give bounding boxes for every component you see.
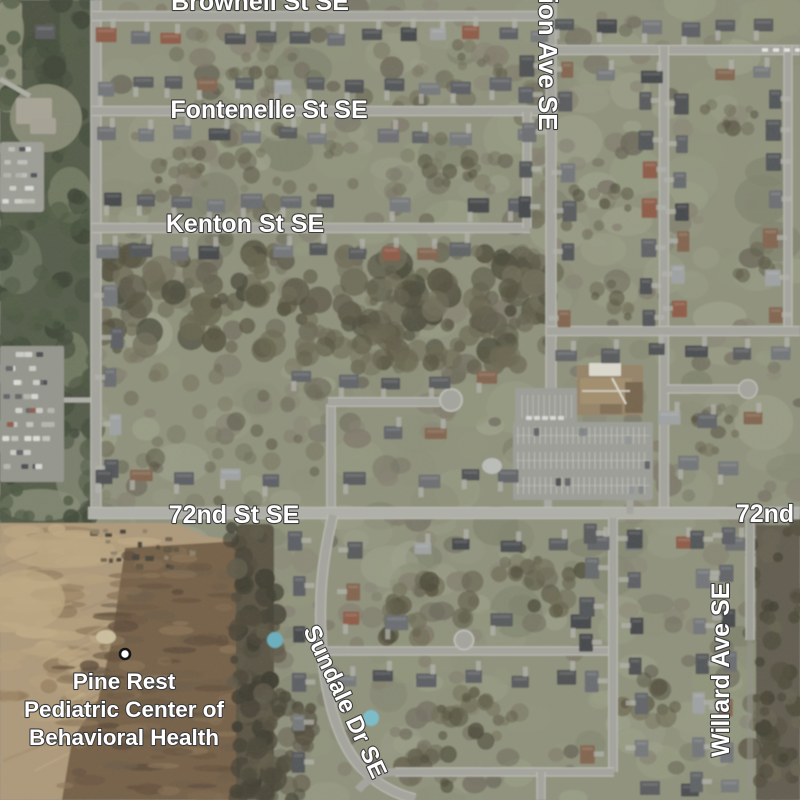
svg-text:Behavioral Health: Behavioral Health <box>29 725 219 750</box>
svg-text:72nd St SE: 72nd St SE <box>169 501 300 529</box>
svg-text:Willard Ave SE: Willard Ave SE <box>707 583 735 757</box>
svg-text:Pine Rest: Pine Rest <box>73 669 176 694</box>
svg-text:Pediatric Center of: Pediatric Center of <box>24 697 225 722</box>
svg-text:Union Ave SE: Union Ave SE <box>533 0 563 131</box>
svg-text:Brownell St SE: Brownell St SE <box>171 0 349 16</box>
svg-text:Fontenelle St SE: Fontenelle St SE <box>170 96 367 124</box>
svg-text:Kenton St SE: Kenton St SE <box>166 210 324 238</box>
svg-text:72nd: 72nd <box>736 500 794 528</box>
